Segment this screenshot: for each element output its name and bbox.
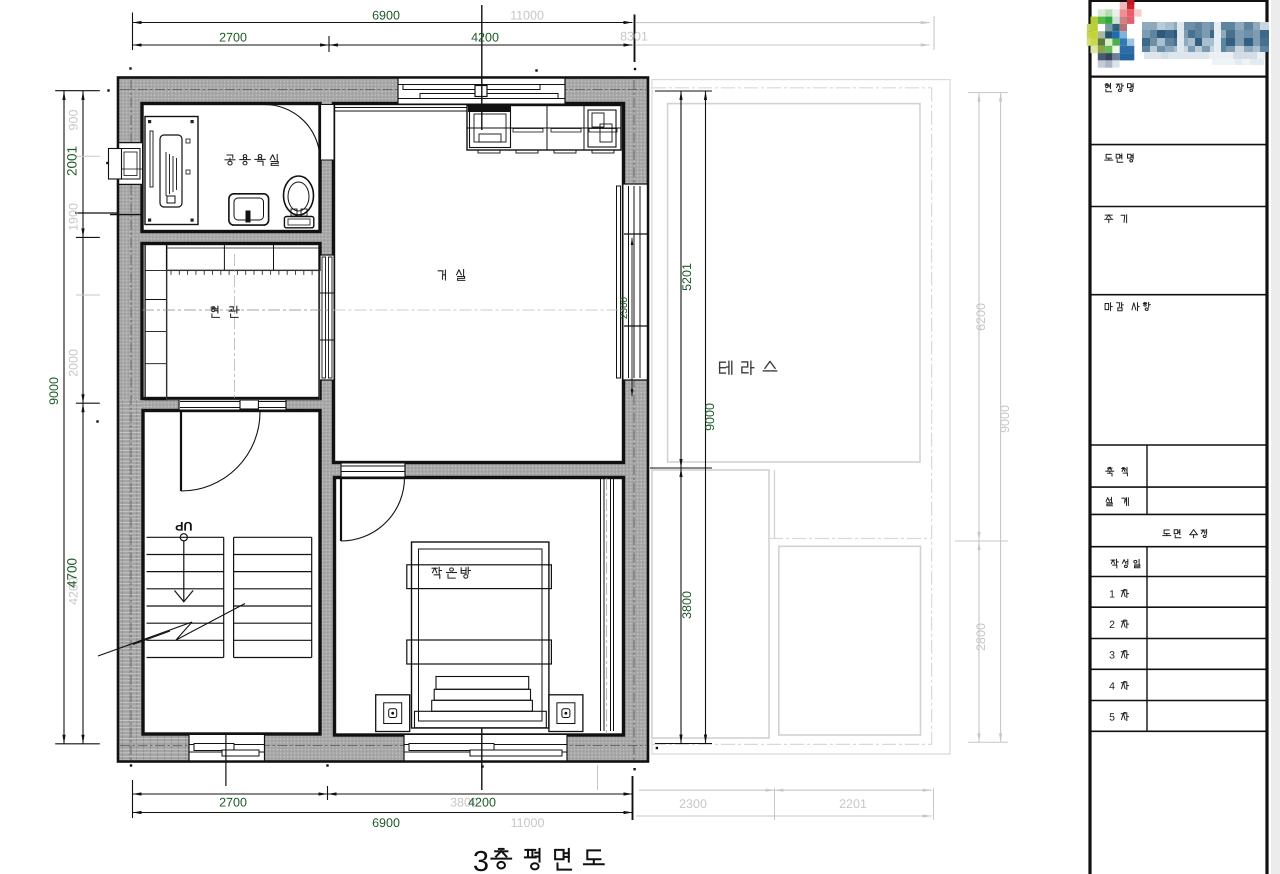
svg-text:2201: 2201 [839,797,867,811]
svg-text:3: 3 [1109,650,1115,662]
svg-text:9000: 9000 [703,403,717,431]
svg-text:6900: 6900 [372,816,400,830]
svg-text:6200: 6200 [974,303,988,331]
svg-text:8301: 8301 [620,30,648,44]
svg-text:6900: 6900 [372,9,400,23]
svg-text:9000: 9000 [47,377,61,405]
svg-text:2001: 2001 [65,146,80,176]
svg-text:4200: 4200 [471,31,499,45]
svg-text:1: 1 [1109,589,1115,601]
svg-text:3800: 3800 [680,591,694,619]
svg-text:900: 900 [67,110,81,131]
svg-text:11000: 11000 [511,816,545,830]
svg-text:2300: 2300 [619,296,630,319]
svg-text:2800: 2800 [974,623,988,651]
svg-text:4: 4 [1109,681,1115,693]
svg-text:2000: 2000 [67,349,81,377]
svg-text:5201: 5201 [680,263,694,291]
svg-text:2700: 2700 [219,31,247,45]
svg-text:4700: 4700 [65,558,80,588]
svg-text:9000: 9000 [998,405,1012,433]
svg-text:2300: 2300 [679,797,707,811]
svg-text:11000: 11000 [510,9,544,23]
svg-text:3: 3 [473,846,489,874]
svg-text:5: 5 [1109,712,1115,724]
svg-text:1900: 1900 [67,203,81,231]
svg-text:2700: 2700 [219,796,247,810]
svg-text:UP: UP [175,519,192,533]
svg-text:4200: 4200 [468,796,496,810]
svg-text:2: 2 [1109,619,1115,631]
